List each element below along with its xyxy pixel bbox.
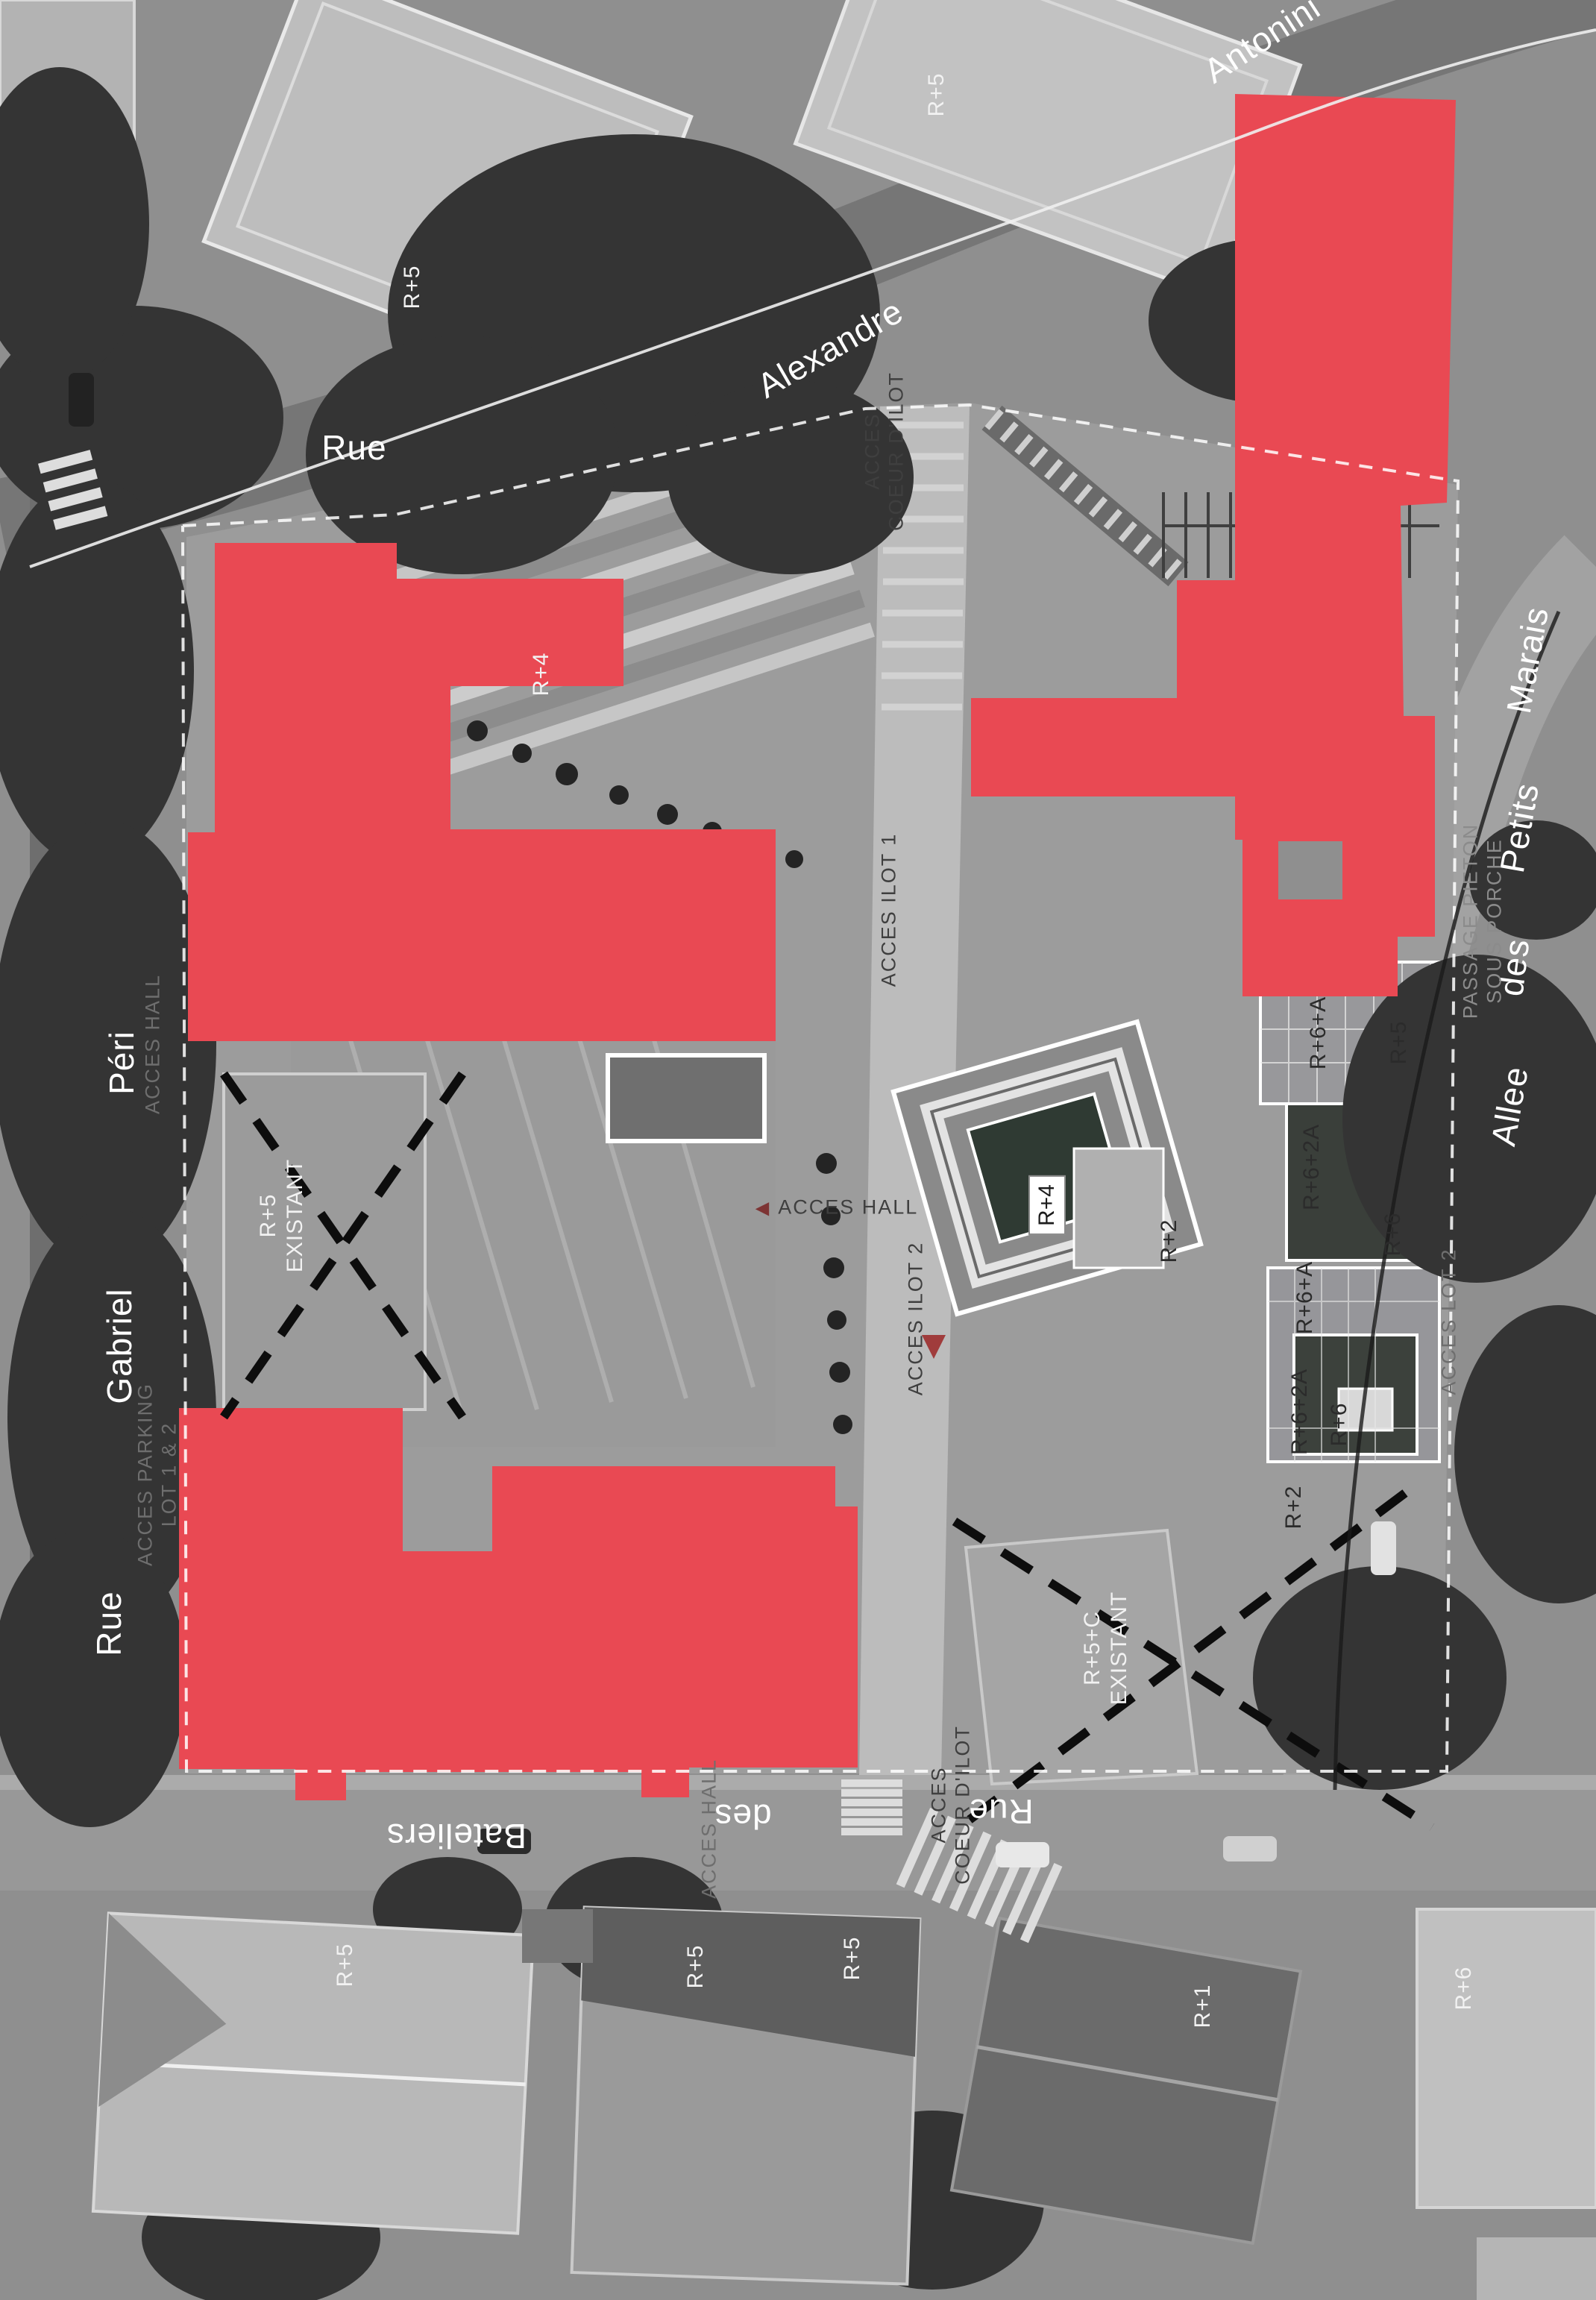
- street-label-des-bottom: des: [714, 1797, 771, 1837]
- access-coeur-bottom-line1: ACCES: [927, 1725, 951, 1885]
- height-label-r6-southeast: R+6: [1451, 1967, 1477, 2011]
- street-label-rue-left: Rue: [89, 1591, 129, 1656]
- access-parking-line1: ACCES PARKING: [133, 1383, 157, 1566]
- access-coeur-bottom-line2: COEUR D'ILOT: [951, 1725, 975, 1885]
- passage-line1: PASSAGE PIETON: [1459, 823, 1483, 1019]
- existing-building-label-west: R+5 EXISTANT: [255, 1159, 309, 1272]
- height-label-r2-lower: R+2: [1281, 1486, 1307, 1530]
- height-label-r5-east: R+5: [1386, 1021, 1412, 1065]
- existing-south-caption: EXISTANT: [1106, 1592, 1133, 1705]
- existing-west-caption: EXISTANT: [282, 1159, 309, 1272]
- site-plan-canvas: Rue Alexandre Antonini Marais Petits des…: [0, 0, 1596, 2300]
- access-hall-center-text: ACCES HALL: [778, 1196, 918, 1219]
- height-label-r6a-north: R+6+A: [1306, 996, 1331, 1069]
- height-label-r5-northwest: R+5: [400, 265, 425, 310]
- existing-south-height: R+5+C: [1079, 1592, 1106, 1705]
- access-hall-label-center: ◀ACCES HALL: [755, 1196, 919, 1219]
- access-coeur-dilot-label-top: ACCES COEUR D'ILOT: [861, 371, 909, 531]
- access-coeur-top-line2: COEUR D'ILOT: [885, 371, 908, 531]
- access-coeur-top-line1: ACCES: [861, 371, 885, 531]
- access-hall-label-west: ACCES HALL: [142, 974, 165, 1114]
- height-label-r6-east: R+6: [1380, 1213, 1406, 1257]
- street-label-rue-bottom: Rue: [968, 1791, 1033, 1832]
- access-ilot2-label: ACCES ILOT 2: [905, 1242, 928, 1396]
- height-label-r6-south: R+6: [1327, 1403, 1352, 1447]
- street-label-rue-top: Rue: [321, 427, 386, 468]
- height-label-r62a-south: R+6+2A: [1287, 1369, 1313, 1455]
- height-label-r2-upper: R+2: [1157, 1219, 1182, 1263]
- access-ilot1-label: ACCES ILOT 1: [878, 833, 901, 987]
- access-coeur-dilot-label-bottom: ACCES COEUR D'ILOT: [927, 1725, 975, 1885]
- height-label-r62a-north: R+6+2A: [1299, 1124, 1325, 1210]
- height-label-r4-box: R+4: [1028, 1175, 1066, 1235]
- height-label-r5-south1: R+5: [333, 1944, 358, 1988]
- height-label-r5-north: R+5: [924, 73, 949, 117]
- existing-building-label-south: R+5+C EXISTANT: [1079, 1592, 1133, 1705]
- existing-west-height: R+5: [255, 1159, 282, 1272]
- access-lot2-label: ACCES LOT 2: [1438, 1248, 1461, 1395]
- height-label-r5-south3: R+5: [840, 1937, 865, 1981]
- height-label-r5-south2: R+5: [683, 1945, 709, 1989]
- street-label-peri: Péri: [101, 1031, 142, 1095]
- red-mass-south-west: [179, 1408, 858, 1800]
- access-hall-label-south: ACCES HALL: [698, 1759, 721, 1899]
- red-mass-notch: [1278, 841, 1342, 899]
- access-parking-label: ACCES PARKING LOT 1 & 2: [133, 1383, 182, 1566]
- passage-pieton-label: PASSAGE PIETON SOUS PORCHE: [1459, 823, 1507, 1019]
- street-label-bateliers: Bateliers: [386, 1816, 527, 1856]
- access-parking-line2: LOT 1 & 2: [157, 1383, 181, 1566]
- height-label-r4-on-red: R+4: [529, 653, 554, 697]
- left-arrow-icon: ◀: [755, 1198, 770, 1219]
- height-label-r6a-south: R+6+A: [1292, 1261, 1318, 1334]
- passage-line2: SOUS PORCHE: [1483, 823, 1507, 1019]
- height-label-r1-south: R+1: [1190, 1985, 1216, 2029]
